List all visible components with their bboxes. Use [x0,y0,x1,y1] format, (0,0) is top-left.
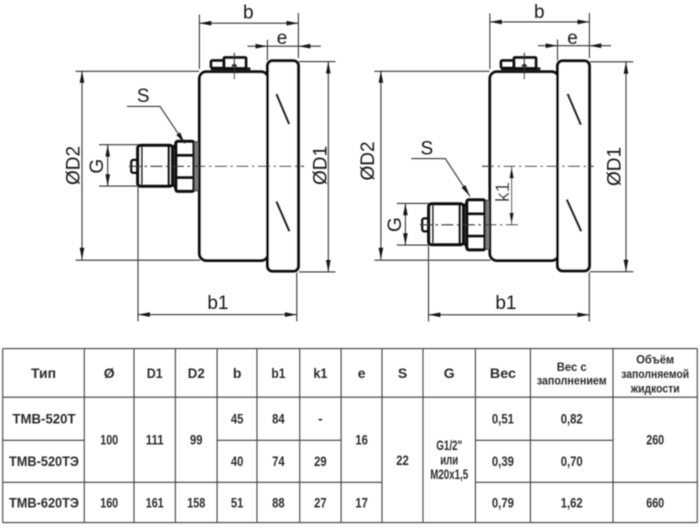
svg-text:ТМВ-520Т: ТМВ-520Т [13,412,77,427]
svg-text:ТМВ-520ТЭ: ТМВ-520ТЭ [9,454,79,469]
svg-text:ØD2: ØD2 [358,141,379,180]
svg-text:17: 17 [355,495,368,510]
svg-text:29: 29 [314,454,327,469]
svg-text:160: 160 [100,495,118,510]
svg-text:заполняемой: заполняемой [621,369,689,381]
svg-text:заполнением: заполнением [537,376,607,388]
svg-text:M20x1,5: M20x1,5 [430,467,468,482]
svg-text:0,51: 0,51 [492,412,514,427]
svg-text:Вес: Вес [490,365,516,381]
svg-text:660: 660 [646,495,664,510]
svg-text:ØD1: ØD1 [310,146,331,185]
svg-text:Ø: Ø [104,365,115,381]
svg-text:Объём: Объём [636,355,674,367]
svg-text:0,82: 0,82 [561,412,583,427]
svg-text:111: 111 [146,433,164,448]
svg-text:0,39: 0,39 [492,454,514,469]
svg-text:ØD2: ØD2 [63,146,84,185]
svg-text:ØD1: ØD1 [605,147,626,186]
svg-text:0,79: 0,79 [492,495,514,510]
svg-text:27: 27 [314,495,327,510]
svg-text:51: 51 [231,495,244,510]
svg-text:100: 100 [100,433,118,448]
svg-text:-: - [318,412,323,427]
svg-text:b: b [233,365,242,381]
svg-text:k1: k1 [313,365,327,381]
svg-text:161: 161 [146,495,164,510]
svg-text:99: 99 [190,433,203,448]
svg-text:S: S [398,365,407,381]
svg-text:e: e [567,28,578,49]
svg-text:b: b [243,2,254,23]
svg-text:S: S [420,138,433,159]
svg-text:158: 158 [187,495,205,510]
svg-text:84: 84 [272,412,285,427]
svg-text:40: 40 [231,454,244,469]
svg-text:88: 88 [272,495,285,510]
svg-text:G: G [444,365,455,381]
svg-text:16: 16 [355,433,368,448]
svg-text:b1: b1 [495,293,516,314]
svg-text:b1: b1 [207,293,228,314]
svg-text:D1: D1 [147,365,163,381]
svg-text:1,62: 1,62 [561,495,583,510]
svg-text:жидкости: жидкости [630,384,680,396]
svg-text:Вес с: Вес с [557,362,588,374]
svg-text:G: G [385,217,406,232]
svg-text:Тип: Тип [31,365,56,381]
svg-text:ТМВ-620ТЭ: ТМВ-620ТЭ [9,495,79,510]
svg-text:45: 45 [231,412,244,427]
svg-text:S: S [137,86,150,107]
svg-text:260: 260 [646,433,664,448]
svg-text:0,70: 0,70 [561,454,583,469]
svg-text:G: G [87,159,108,174]
svg-text:74: 74 [272,454,285,469]
svg-text:e: e [358,365,366,381]
svg-text:D2: D2 [188,365,205,381]
svg-text:k1: k1 [493,182,514,202]
svg-text:или: или [440,452,458,467]
svg-text:e: e [277,28,288,49]
svg-text:G1/2": G1/2" [436,438,462,453]
svg-text:b: b [534,2,545,23]
svg-text:22: 22 [396,453,409,468]
svg-text:b1: b1 [271,365,285,381]
